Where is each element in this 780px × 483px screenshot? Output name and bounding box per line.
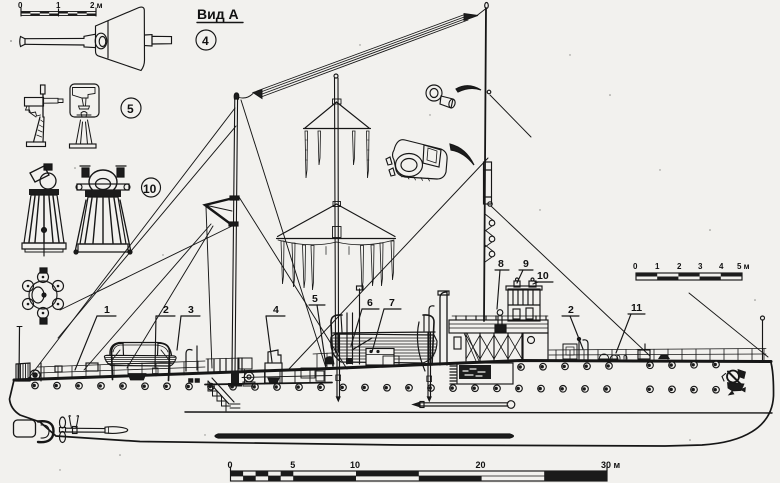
svg-text:2: 2 <box>163 304 169 316</box>
svg-text:1: 1 <box>56 1 61 10</box>
svg-text:11: 11 <box>631 302 642 314</box>
svg-text:4: 4 <box>202 34 209 48</box>
svg-text:4: 4 <box>273 304 279 316</box>
svg-text:3: 3 <box>188 304 194 316</box>
svg-text:5: 5 <box>290 460 295 470</box>
svg-text:5: 5 <box>127 102 134 116</box>
svg-text:9: 9 <box>523 258 529 270</box>
svg-text:0: 0 <box>633 262 638 271</box>
svg-text:6: 6 <box>367 297 373 309</box>
svg-text:7: 7 <box>389 297 395 309</box>
svg-text:5 м: 5 м <box>737 262 750 271</box>
svg-text:20: 20 <box>476 460 486 470</box>
svg-text:1: 1 <box>655 262 660 271</box>
svg-text:Вид А: Вид А <box>197 6 239 22</box>
svg-text:10: 10 <box>537 270 549 282</box>
svg-text:5: 5 <box>312 293 318 305</box>
svg-text:10: 10 <box>350 460 360 470</box>
svg-text:3: 3 <box>698 262 703 271</box>
svg-text:2: 2 <box>677 262 682 271</box>
svg-text:1: 1 <box>104 304 110 316</box>
svg-text:2 м: 2 м <box>90 1 103 10</box>
svg-text:10: 10 <box>143 182 157 196</box>
svg-text:30 м: 30 м <box>601 460 621 470</box>
svg-text:4: 4 <box>719 262 724 271</box>
svg-text:0: 0 <box>18 1 23 10</box>
svg-text:2: 2 <box>568 304 574 316</box>
svg-text:8: 8 <box>498 258 504 270</box>
